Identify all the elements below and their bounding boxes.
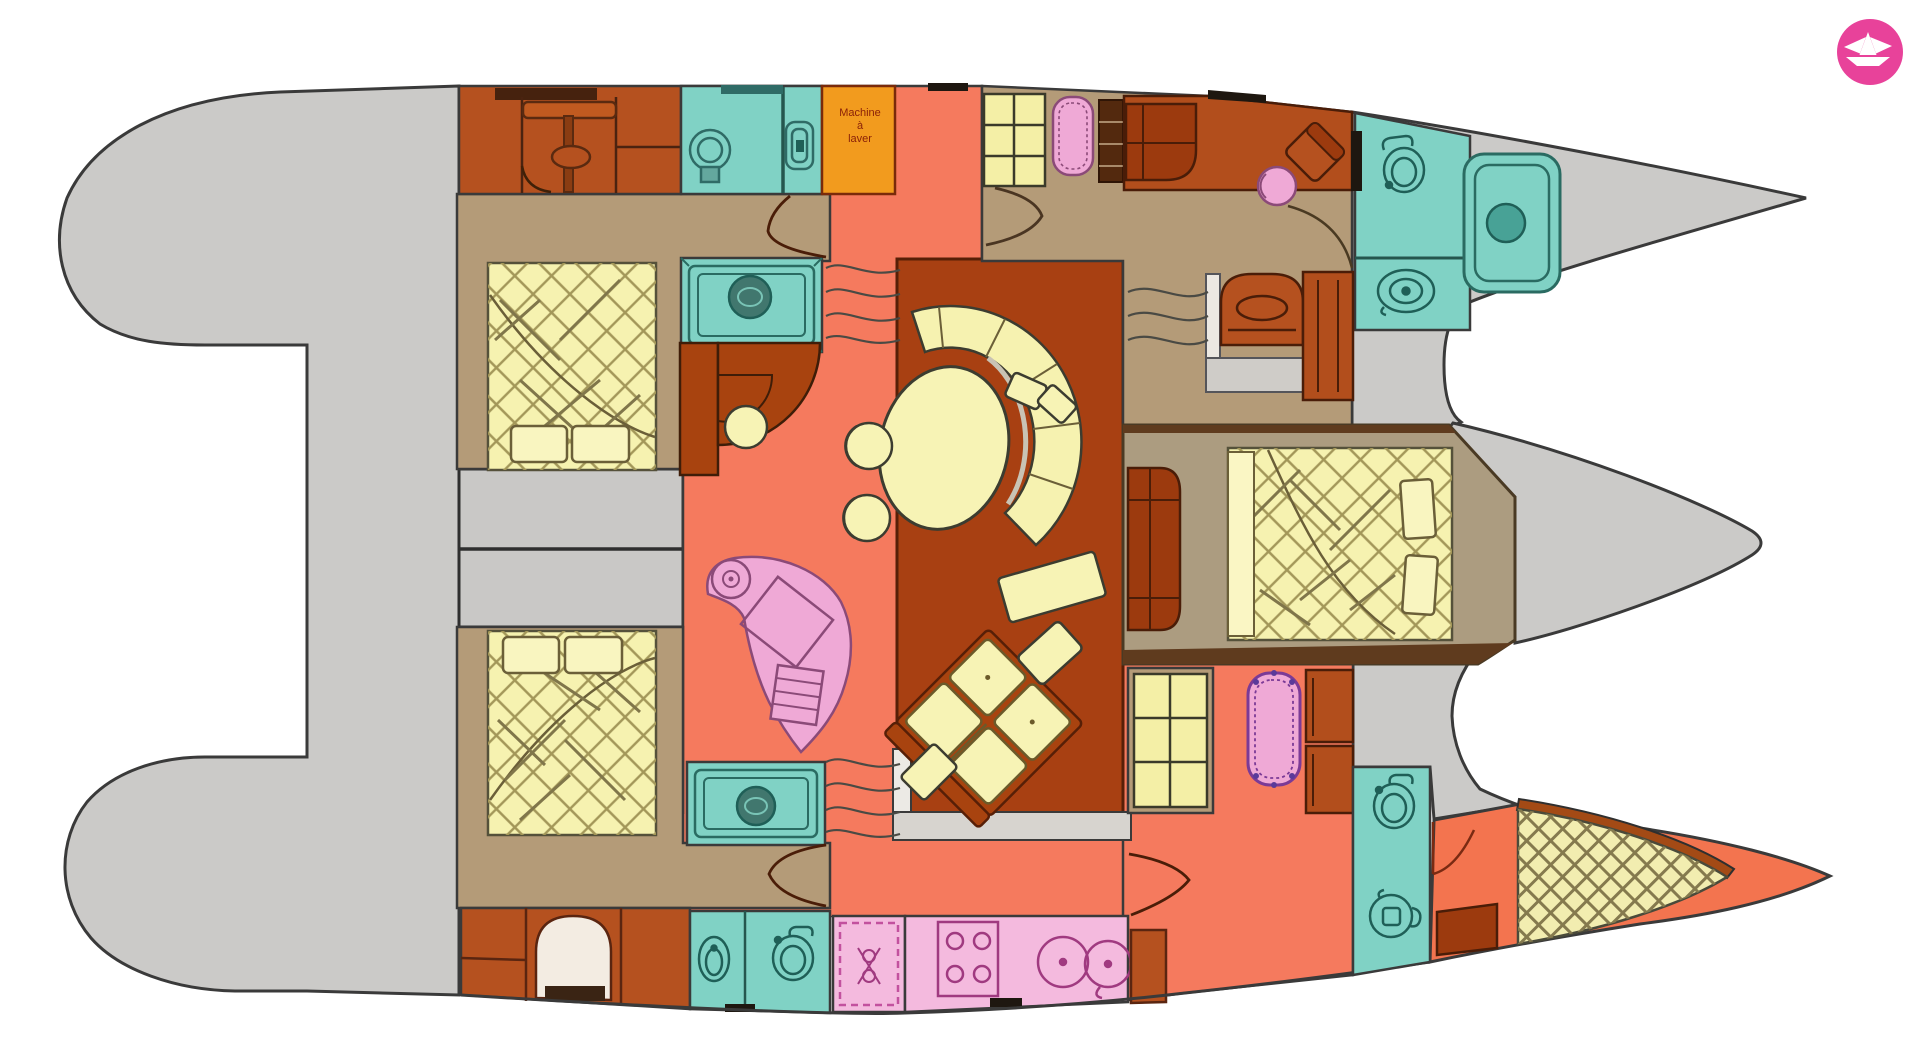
svg-text:à: à [857,120,864,132]
svg-text:laver: laver [848,133,872,145]
svg-text:Machine: Machine [839,107,881,119]
